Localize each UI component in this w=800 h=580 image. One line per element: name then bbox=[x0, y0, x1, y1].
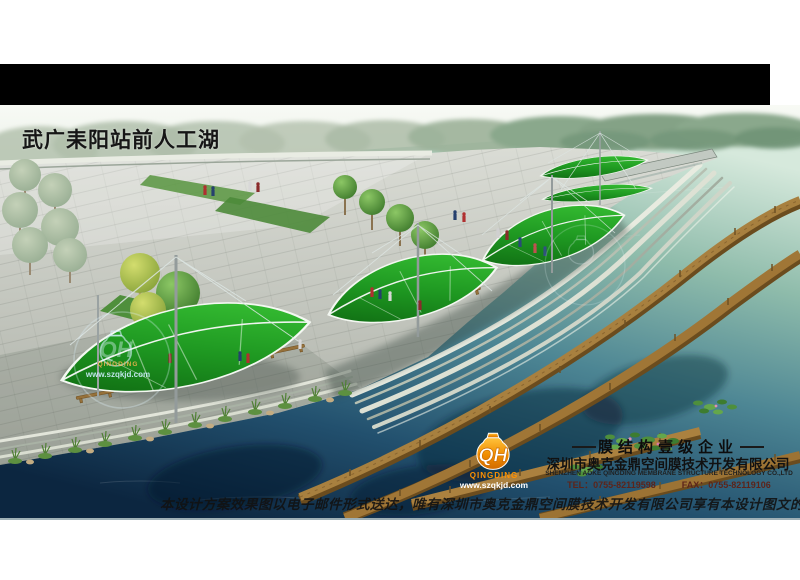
fax-number: 0755-82119106 bbox=[708, 480, 771, 490]
tel-label: TEL： bbox=[567, 480, 593, 490]
company-brand-block: QH QINGDING www.szqkjd.com 膜结构壹级企业 深圳市奥克… bbox=[452, 430, 800, 492]
brand-name: QINGDING bbox=[452, 471, 536, 480]
canopy-watermark-brand: QINGDING bbox=[86, 361, 150, 368]
dash-line bbox=[740, 446, 764, 448]
top-black-bar bbox=[0, 64, 770, 105]
page-title: 武广耒阳站前人工湖 bbox=[22, 124, 220, 154]
copyright-line: 本设计方案效果图以电子邮件形式送达，唯有深圳市奥克金鼎空间膜技术开发有限公司享有… bbox=[160, 493, 800, 513]
canopy-watermark-url: www.szqkjd.com bbox=[80, 370, 156, 379]
company-name-en: SHENZHEN AOKE QINGDING MEMBRANE STRUCTUR… bbox=[540, 470, 798, 477]
presentation-board: QH 武广耒阳站前人工湖 QINGDING www.szqkjd.com QH … bbox=[0, 0, 800, 580]
svg-text:QH: QH bbox=[478, 445, 508, 467]
tel-number: 0755-82119598 bbox=[593, 480, 656, 490]
brand-website: www.szqkjd.com bbox=[452, 480, 536, 490]
fax-label: FAX： bbox=[682, 480, 709, 490]
company-logo-icon: QH bbox=[466, 432, 520, 472]
svg-text:QH: QH bbox=[100, 337, 134, 362]
tel-fax-line: TEL：0755-82119598FAX：0755-82119106 bbox=[540, 478, 798, 491]
dash-line bbox=[572, 446, 596, 448]
